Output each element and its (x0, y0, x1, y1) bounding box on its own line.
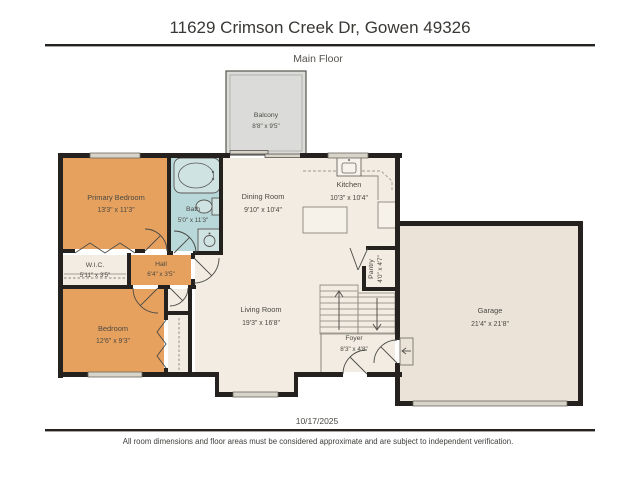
wall-segment (219, 157, 223, 255)
top-rule (45, 44, 595, 46)
wall-segment (578, 221, 583, 406)
bottom-rule (45, 429, 595, 431)
vanity-faucet-dot (209, 233, 211, 235)
balcony-dims: 8'8" x 9'5" (252, 123, 280, 130)
hall-label: Hall (155, 261, 167, 268)
wall-segment (135, 249, 145, 253)
page-title: 11629 Crimson Creek Dr, Gowen 49326 (169, 18, 470, 37)
foyer-label: Foyer (345, 335, 363, 342)
sink-faucet-dot (348, 159, 350, 161)
bath-label: Bath (186, 206, 200, 213)
refrigerator (378, 202, 396, 228)
wall-segment (164, 289, 168, 320)
wall-segment (164, 368, 168, 374)
window (88, 372, 142, 377)
wall-segment (294, 372, 343, 377)
floor-label: Main Floor (293, 53, 343, 65)
hall-floor (131, 255, 191, 285)
wall-segment (193, 251, 223, 255)
garage-landing (400, 338, 413, 365)
floor-plan-page: 11629 Crimson Creek Dr, Gowen 49326 Main… (0, 0, 640, 479)
bedroom-label: Bedroom (98, 324, 128, 333)
window (328, 153, 368, 158)
pantry-label: Pantry (368, 259, 375, 279)
closet-floor (168, 289, 188, 372)
sliding-door-panel (230, 151, 268, 155)
sliding-door-panel (265, 154, 302, 158)
kitchen-label: Kitchen (337, 180, 362, 189)
bedroom-dims: 12'6" x 9'3" (96, 338, 131, 345)
garage-dims: 21'4" x 21'8" (471, 321, 509, 328)
tub-faucet-dot (212, 178, 214, 180)
wall-segment (395, 363, 400, 406)
balcony-label: Balcony (254, 112, 279, 119)
window (233, 392, 278, 397)
kitchen-island (303, 207, 347, 233)
wall-segment (164, 311, 192, 315)
wall-segment (366, 246, 397, 250)
floor-plan: 11629 Crimson Creek Dr, Gowen 49326 Main… (0, 0, 640, 479)
garage-door (413, 401, 567, 406)
wic-floor (63, 255, 127, 285)
wic-dims: 5'11" x 3'5" (80, 272, 111, 279)
wall-segment (158, 285, 170, 289)
primary-bedroom-floor (63, 158, 167, 249)
hall-dims: 6'4" x 3'5" (147, 271, 175, 278)
disclaimer-text: All room dimensions and floor areas must… (123, 437, 514, 446)
wall-segment (395, 221, 583, 226)
date-label: 10/17/2025 (296, 416, 339, 426)
wic-label: W.I.C. (86, 262, 105, 269)
living-bump-floor (219, 372, 294, 392)
wall-segment (567, 401, 583, 406)
living-room-dims: 19'3" x 16'8" (242, 320, 280, 327)
wall-segment (167, 157, 171, 253)
wall-segment (127, 253, 131, 289)
primary-bedroom-label: Primary Bedroom (87, 193, 145, 202)
garage-label: Garage (478, 306, 503, 315)
dining-room-label: Dining Room (242, 192, 285, 201)
foyer-dims: 8'3" x 4'8" (340, 346, 368, 353)
bath-dims: 5'0" x 11'3" (178, 217, 209, 224)
wall-segment (167, 251, 173, 255)
wall-segment (362, 287, 397, 291)
living-room-label: Living Room (240, 305, 281, 314)
tub-faucet-dot (212, 171, 214, 173)
wall-segment (58, 285, 133, 289)
wall-segment (188, 289, 192, 374)
dining-room-dims: 9'10" x 10'4" (244, 207, 282, 214)
wall-segment (191, 279, 195, 289)
window (90, 153, 140, 158)
primary-bedroom-dims: 13'3" x 11'3" (97, 207, 135, 214)
wall-segment (58, 153, 63, 378)
kitchen-dims: 10'3" x 10'4" (330, 195, 368, 202)
wall-segment (62, 249, 75, 253)
wall-segment (58, 153, 230, 158)
pantry-dims: 4'0" x 4'7" (377, 255, 384, 283)
wall-segment (395, 401, 413, 406)
